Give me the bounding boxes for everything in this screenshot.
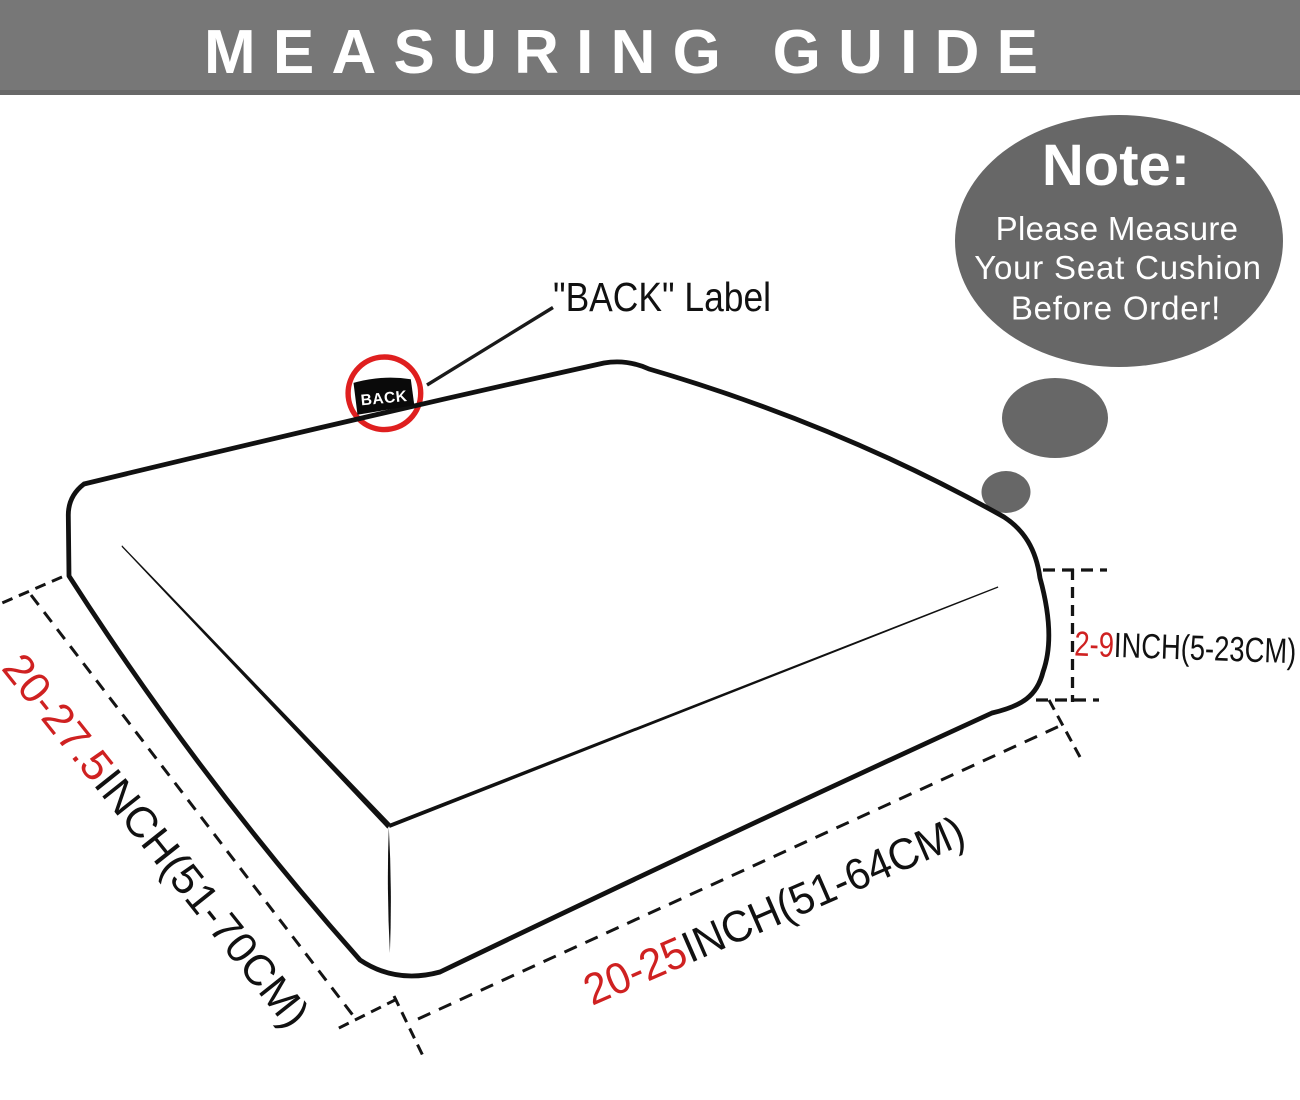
svg-text:Before Order!: Before Order! xyxy=(1011,290,1221,327)
svg-text:"BACK" Label: "BACK" Label xyxy=(553,274,771,320)
svg-text:Note:: Note: xyxy=(1042,133,1190,198)
svg-text:2-9INCH(5-23CM): 2-9INCH(5-23CM) xyxy=(1074,625,1297,672)
svg-text:Your Seat Cushion: Your Seat Cushion xyxy=(974,249,1262,286)
svg-text:Please Measure: Please Measure xyxy=(996,210,1239,247)
